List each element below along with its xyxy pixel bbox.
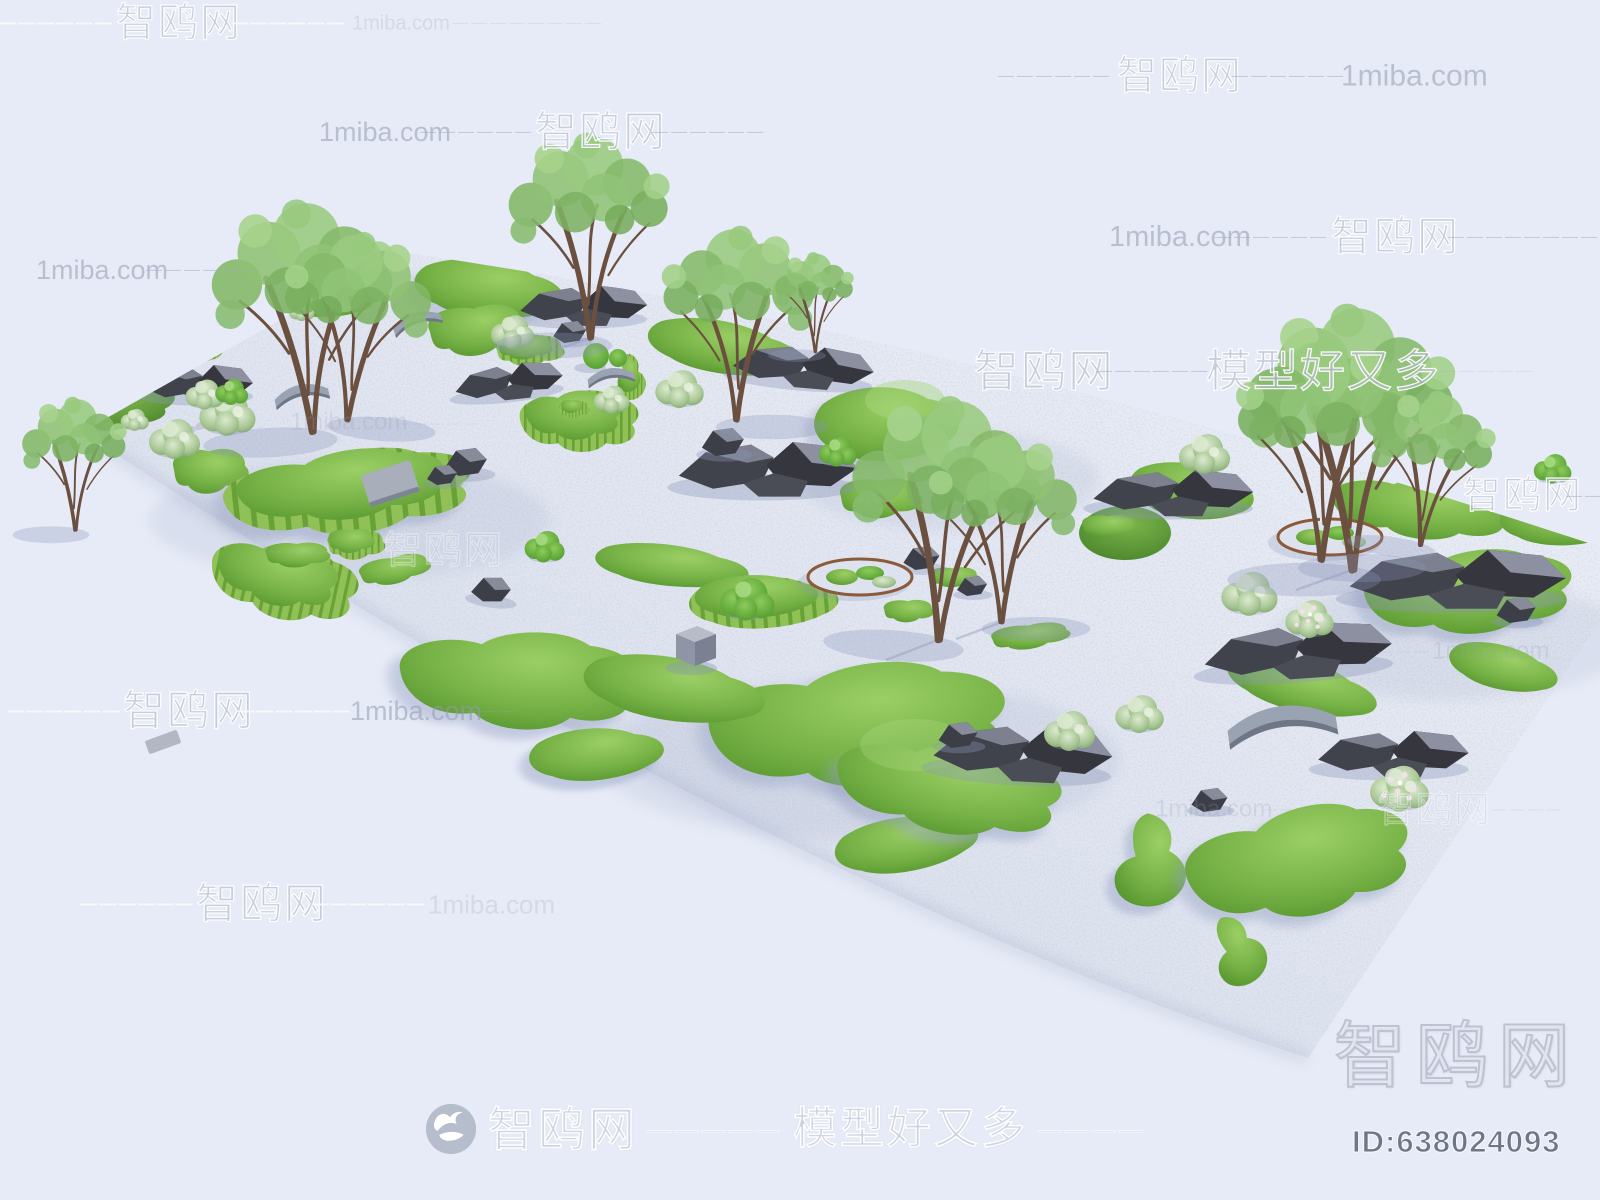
tree (13, 397, 127, 543)
garden-render-image: ——————智鸥网——————1miba.com——————————————智鸥… (0, 0, 1600, 1200)
garden-3d-scene (0, 0, 1600, 1200)
slab-seat (145, 730, 182, 755)
